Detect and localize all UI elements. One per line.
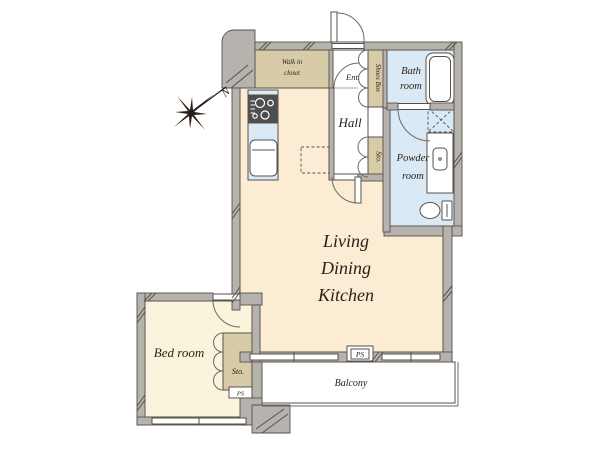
wall-segment xyxy=(454,42,462,235)
label-bedroom-storage: Sto. xyxy=(232,367,244,376)
label-hall-storage: Sto. xyxy=(375,151,384,163)
entrance-door xyxy=(331,12,364,50)
label-bath-room: room xyxy=(400,81,422,92)
wall-segment xyxy=(252,405,290,433)
room-walk-in-closet xyxy=(255,50,330,88)
label-hall: Hall xyxy=(337,115,362,130)
bathtub-inner xyxy=(430,57,451,102)
ps-label: PS xyxy=(236,391,245,398)
wall-segment xyxy=(364,42,456,50)
hall-niche xyxy=(368,107,384,137)
wall-segment xyxy=(329,88,334,180)
floor-plan-drawing: PS PS xyxy=(0,0,600,450)
label-powder-room: Powder xyxy=(396,153,431,164)
ps-box-ldk-wall: PS xyxy=(347,346,373,361)
compass-icon: N xyxy=(174,85,233,130)
label-ldk: Living xyxy=(322,231,369,251)
ps-label: PS xyxy=(355,350,365,359)
label-walk-in-closet: Walk in xyxy=(282,59,303,66)
label-ldk: Kitchen xyxy=(317,285,374,305)
toilet-icon xyxy=(420,201,452,220)
label-bath-room: Bath xyxy=(401,66,421,77)
floor-plan: PS PS xyxy=(0,0,600,450)
wall-segment xyxy=(383,108,390,232)
window xyxy=(382,353,440,362)
wall-segment xyxy=(232,88,240,310)
label-powder-room: room xyxy=(402,171,424,182)
label-balcony: Balcony xyxy=(335,378,368,389)
kitchen-sink-icon xyxy=(250,140,277,176)
vanity-sink-icon xyxy=(427,133,453,193)
wall-segment xyxy=(443,226,452,362)
window xyxy=(152,417,246,426)
label-walk-in-closet: closet xyxy=(284,70,301,77)
wall-segment xyxy=(387,103,398,110)
wall-segment xyxy=(222,30,255,88)
label-entrance: Ent. xyxy=(345,72,360,82)
wall-segment xyxy=(329,50,333,88)
ps-box-bedroom: PS xyxy=(229,387,252,398)
wall-segment xyxy=(383,50,387,108)
window xyxy=(250,353,338,362)
wall-segment xyxy=(252,305,260,362)
label-bed-room: Bed room xyxy=(154,345,204,360)
wall-segment xyxy=(430,103,454,110)
label-shoes-box: Shoes Box xyxy=(374,64,381,92)
label-ldk: Dining xyxy=(320,258,371,278)
kitchen-stove-icon xyxy=(249,95,277,123)
wall-segment xyxy=(240,293,262,305)
